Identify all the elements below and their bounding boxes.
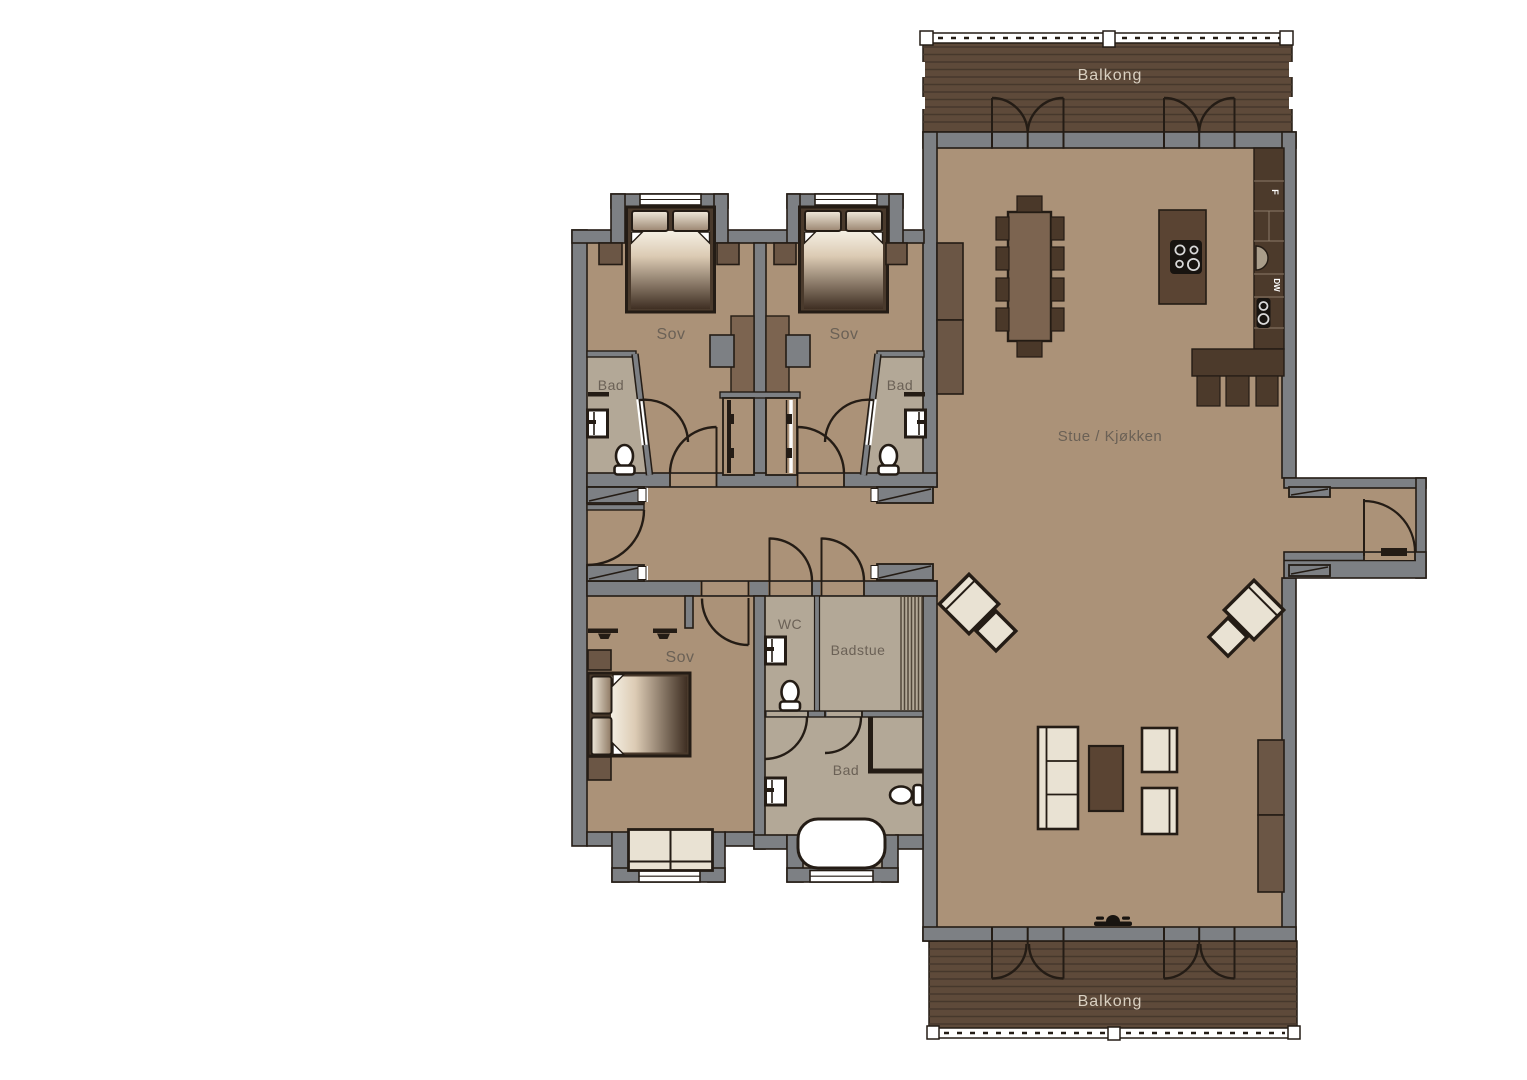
svg-text:Balkong: Balkong [1078, 993, 1143, 1010]
svg-text:Bad: Bad [887, 377, 913, 393]
svg-text:Stue / Kjøkken: Stue / Kjøkken [1058, 428, 1163, 445]
svg-text:F: F [1270, 189, 1280, 195]
svg-text:Sov: Sov [656, 326, 685, 343]
svg-text:WC: WC [778, 616, 802, 632]
svg-text:Badstue: Badstue [831, 642, 886, 658]
svg-text:Balkong: Balkong [1078, 67, 1143, 84]
svg-text:Sov: Sov [665, 649, 694, 666]
svg-text:Bad: Bad [598, 377, 624, 393]
svg-text:Sov: Sov [829, 326, 858, 343]
svg-text:Bad: Bad [833, 762, 859, 778]
svg-text:DW: DW [1272, 278, 1281, 292]
